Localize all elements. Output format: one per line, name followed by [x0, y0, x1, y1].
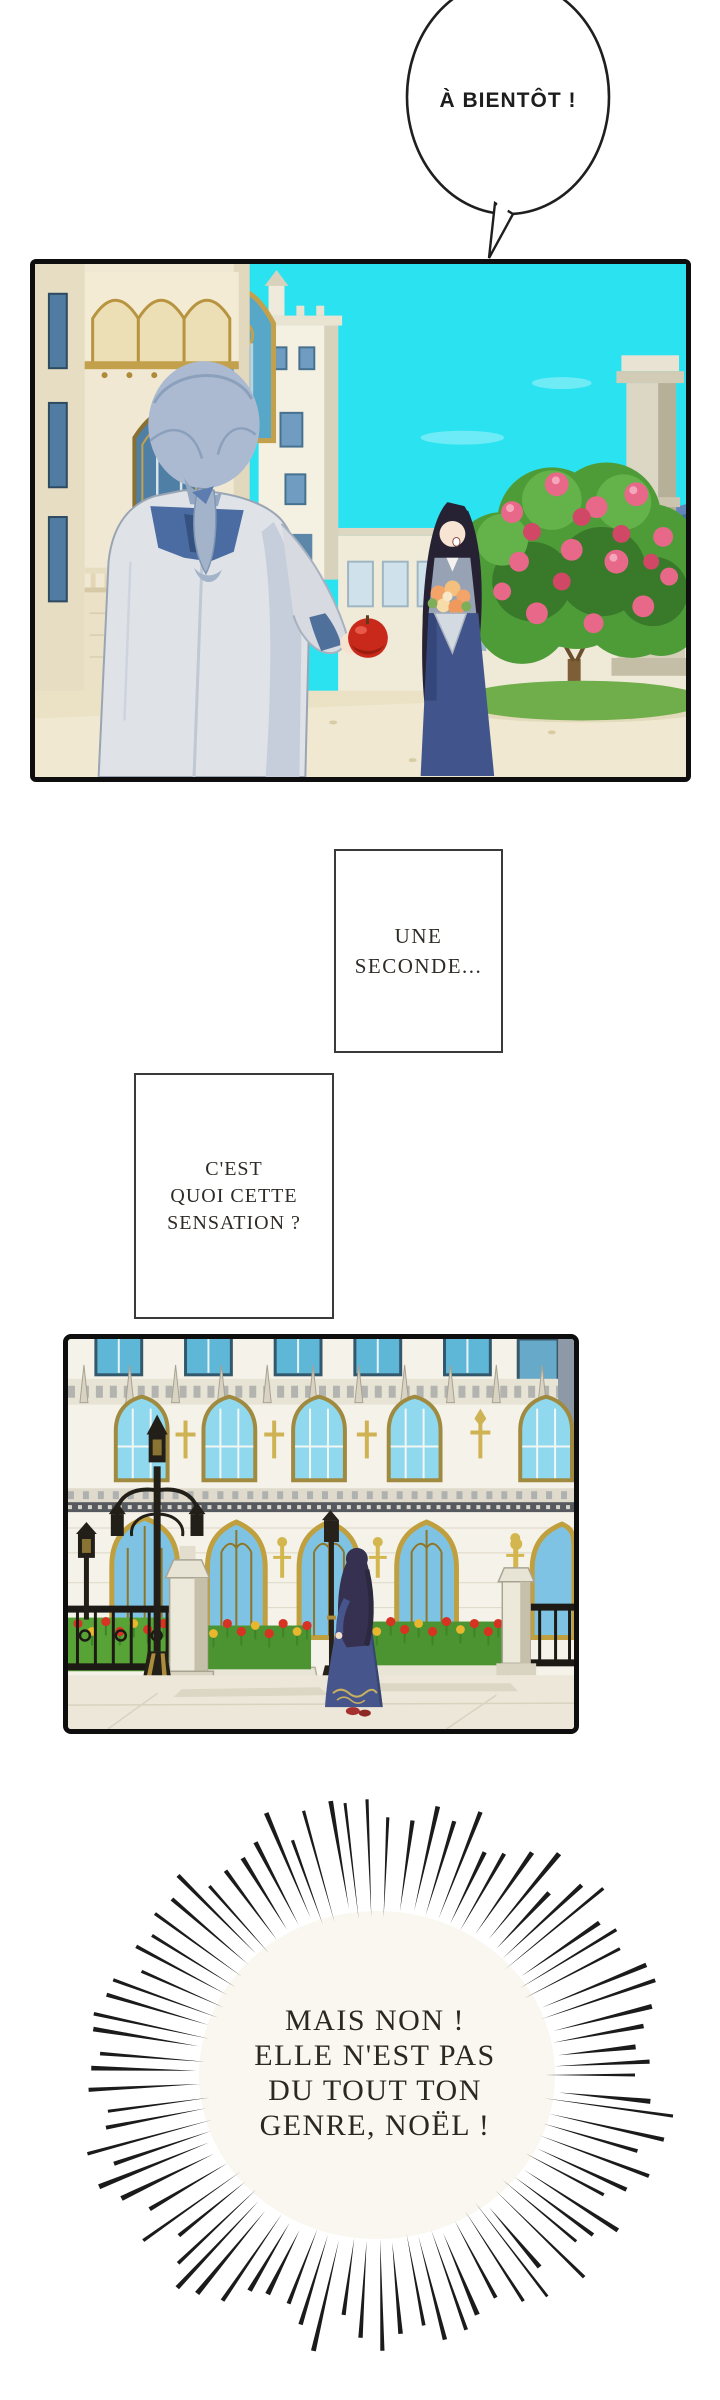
panel-1-artwork [30, 259, 691, 782]
thought-box-line: SECONDE... [355, 951, 483, 981]
burst-text-line: GENRE, NOËL ! [222, 2108, 528, 2143]
comic-page: À BIENTÔT ! [0, 0, 720, 2400]
thought-box-sensation: C'EST QUOI CETTE SENSATION ? [134, 1073, 334, 1319]
panel-2-illustration [68, 1339, 574, 1729]
thought-box-line: SENSATION ? [167, 1210, 301, 1237]
speech-bubble [398, 0, 618, 268]
burst-text: MAIS NON ! ELLE N'EST PAS DU TOUT TON GE… [222, 2003, 528, 2143]
pavement [68, 1675, 574, 1729]
burst-text-line: ELLE N'EST PAS [222, 2038, 528, 2073]
thought-box-line: QUOI CETTE [170, 1183, 297, 1210]
cornice-bands [68, 1488, 574, 1512]
burst-text-line: DU TOUT TON [222, 2073, 528, 2108]
burst-text-line: MAIS NON ! [222, 2003, 528, 2038]
panel-1-illustration [35, 264, 686, 777]
thought-box-une-seconde: UNE SECONDE... [334, 849, 503, 1053]
thought-box-line: UNE [395, 921, 443, 951]
panel-2-artwork [63, 1334, 579, 1734]
speech-bubble-text: À BIENTÔT ! [398, 88, 618, 114]
thought-box-line: C'EST [205, 1156, 263, 1183]
